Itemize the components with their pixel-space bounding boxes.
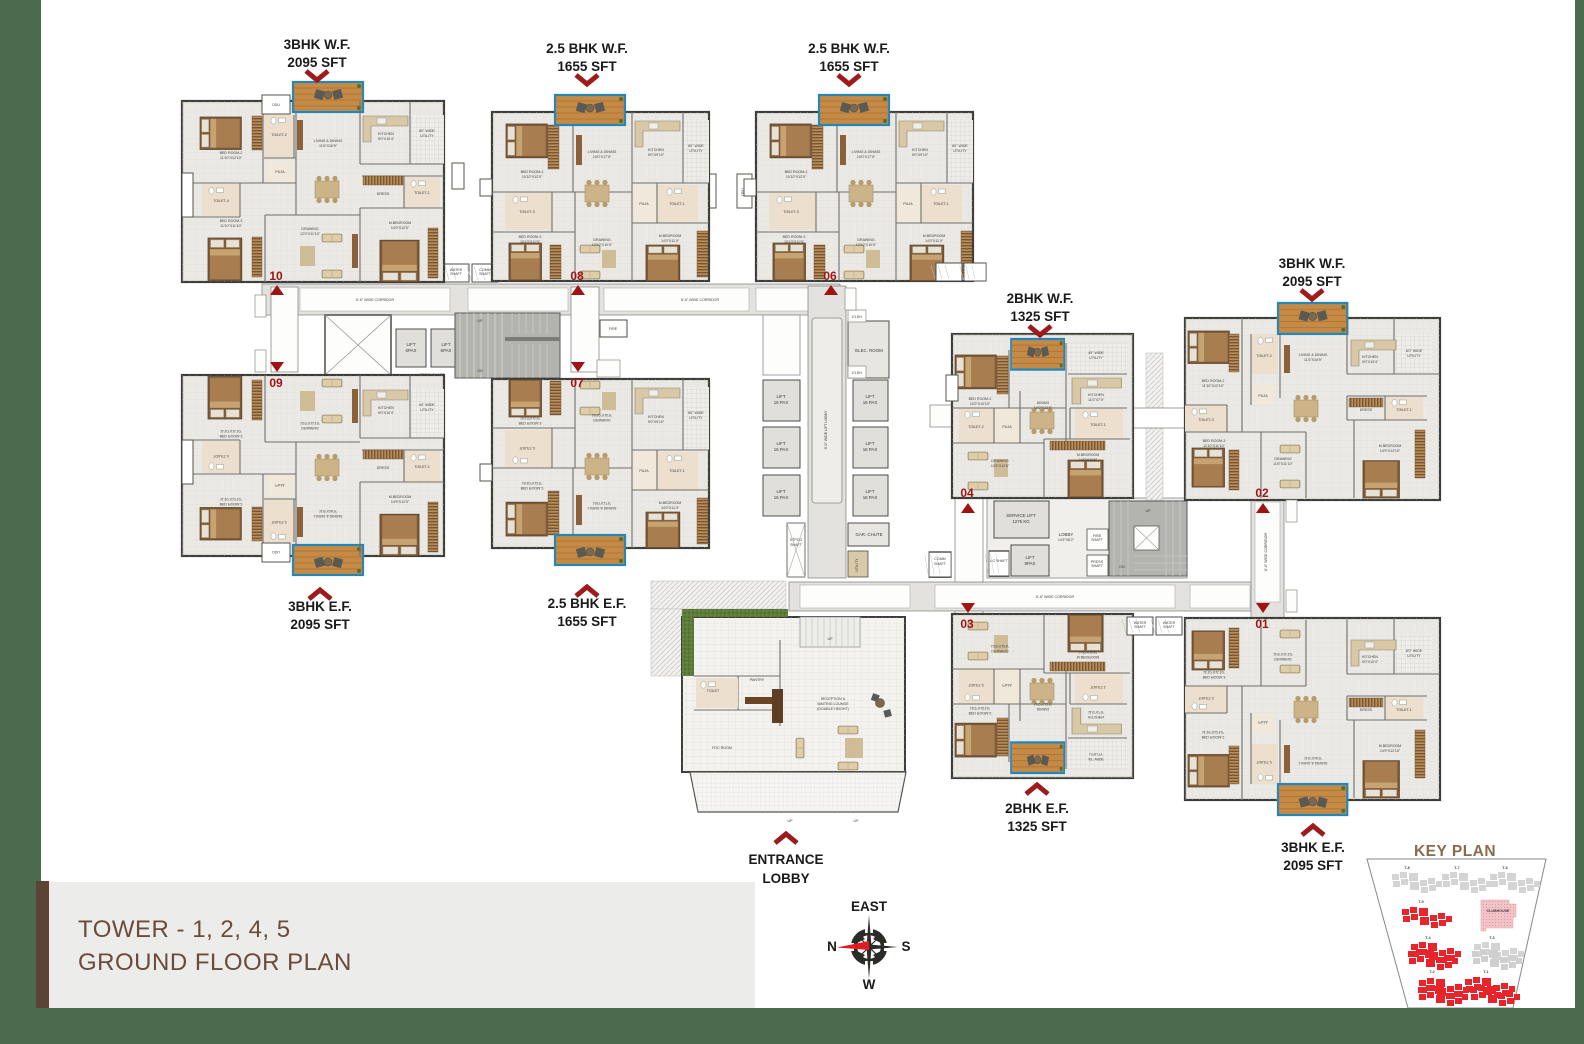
svg-text:T-2: T-2 [1429, 970, 1434, 974]
svg-text:LIFT: LIFT [776, 441, 785, 446]
svg-text:6PAX: 6PAX [441, 348, 452, 353]
svg-text:3BHK W.F.: 3BHK W.F. [284, 37, 351, 52]
svg-text:T-7: T-7 [1454, 866, 1459, 870]
svg-text:T-6: T-6 [1502, 866, 1507, 870]
svg-text:GROUND FLOOR PLAN: GROUND FLOOR PLAN [78, 949, 352, 976]
svg-text:8'-6" WIDE CORRIDOR: 8'-6" WIDE CORRIDOR [1036, 595, 1075, 599]
svg-text:W: W [863, 977, 876, 992]
svg-text:09: 09 [269, 376, 283, 390]
svg-text:16 PAX: 16 PAX [863, 495, 878, 500]
svg-text:9'-0" WIDE LIFT LOBBY: 9'-0" WIDE LIFT LOBBY [824, 410, 828, 449]
svg-text:2095 SFT: 2095 SFT [287, 55, 347, 70]
svg-text:UP: UP [828, 637, 834, 641]
svg-text:DN: DN [477, 369, 483, 373]
svg-text:2.5 BHK E.F.: 2.5 BHK E.F. [548, 596, 627, 611]
svg-text:SHAFT: SHAFT [479, 272, 492, 276]
svg-text:08: 08 [570, 269, 584, 283]
svg-text:UP: UP [478, 319, 484, 323]
svg-text:ELSH: ELSH [852, 315, 862, 319]
svg-text:2095 SFT: 2095 SFT [1283, 858, 1343, 873]
svg-text:(DOUBLE HEIGHT): (DOUBLE HEIGHT) [817, 707, 849, 711]
svg-text:8'-6" WIDE CORRIDOR: 8'-6" WIDE CORRIDOR [1264, 533, 1268, 572]
svg-text:LIFT: LIFT [776, 394, 785, 399]
svg-text:8'-6" WIDE CORRIDOR: 8'-6" WIDE CORRIDOR [356, 298, 395, 302]
svg-text:01: 01 [1255, 617, 1269, 631]
svg-text:LIFT: LIFT [865, 441, 874, 446]
svg-text:LIFT: LIFT [406, 342, 415, 347]
svg-text:N: N [827, 939, 837, 954]
svg-text:3BHK W.F.: 3BHK W.F. [1279, 256, 1346, 271]
svg-text:TOWER - 1, 2, 4, 5: TOWER - 1, 2, 4, 5 [78, 916, 291, 943]
svg-text:SHAFT: SHAFT [934, 562, 947, 566]
svg-text:LIFT: LIFT [1025, 555, 1034, 560]
svg-text:RECEPTION &: RECEPTION & [821, 697, 846, 701]
svg-text:EAST: EAST [851, 899, 888, 914]
svg-text:16 PAX: 16 PAX [774, 400, 789, 405]
svg-text:6PAX: 6PAX [406, 348, 417, 353]
svg-text:T-5: T-5 [1418, 900, 1423, 904]
svg-text:GAR. CHUTE: GAR. CHUTE [855, 532, 882, 537]
svg-text:UP: UP [1146, 509, 1152, 513]
svg-text:S: S [901, 939, 910, 954]
svg-text:8PAX: 8PAX [1025, 561, 1036, 566]
svg-text:16 PAX: 16 PAX [774, 447, 789, 452]
svg-text:ELEC. ROOM: ELEC. ROOM [855, 348, 883, 353]
svg-text:8'-6" WIDE CORRIDOR: 8'-6" WIDE CORRIDOR [681, 298, 720, 302]
svg-text:KEY PLAN: KEY PLAN [1414, 843, 1496, 860]
svg-text:07: 07 [570, 376, 584, 390]
svg-text:2095 SFT: 2095 SFT [1282, 274, 1342, 289]
svg-text:SHAFT: SHAFT [790, 543, 803, 547]
svg-text:06: 06 [823, 269, 837, 283]
svg-text:ELSH: ELSH [852, 371, 862, 375]
svg-text:WAITING LOUNGE: WAITING LOUNGE [817, 702, 849, 706]
svg-text:SHAFT: SHAFT [450, 272, 463, 276]
svg-text:ENTRANCE: ENTRANCE [748, 852, 823, 867]
svg-text:1655 SFT: 1655 SFT [557, 59, 617, 74]
svg-text:04: 04 [960, 486, 974, 500]
svg-text:3BHK E.F.: 3BHK E.F. [1281, 840, 1345, 855]
svg-text:DN: DN [1119, 565, 1125, 569]
svg-text:03: 03 [960, 617, 974, 631]
svg-text:3BHK E.F.: 3BHK E.F. [288, 599, 352, 614]
svg-text:SERVICE LIFT: SERVICE LIFT [1006, 513, 1036, 518]
svg-text:LG SHAFT: LG SHAFT [990, 559, 1008, 563]
svg-text:CLUBHOUSE: CLUBHOUSE [1487, 909, 1510, 913]
svg-text:1325 SFT: 1325 SFT [1010, 309, 1070, 324]
svg-text:PANTRY: PANTRY [750, 678, 765, 682]
svg-text:TOILET: TOILET [707, 689, 720, 693]
svg-text:T-1: T-1 [1483, 970, 1488, 974]
svg-text:16 PAX: 16 PAX [774, 495, 789, 500]
svg-text:LOBBY: LOBBY [762, 871, 809, 886]
svg-text:STPCG: STPCG [790, 538, 803, 542]
svg-text:02: 02 [1255, 486, 1269, 500]
svg-text:1655 SFT: 1655 SFT [557, 614, 617, 629]
svg-text:2.5 BHK W.F.: 2.5 BHK W.F. [808, 41, 890, 56]
svg-text:14'4"X8'2": 14'4"X8'2" [1058, 538, 1075, 542]
svg-text:1325 SFT: 1325 SFT [1007, 819, 1067, 834]
svg-text:UTILITY: UTILITY [855, 558, 859, 572]
svg-text:T-8: T-8 [1404, 866, 1409, 870]
svg-text:16 PAX: 16 PAX [863, 447, 878, 452]
svg-text:16 PAX: 16 PAX [863, 400, 878, 405]
svg-text:2.5 BHK W.F.: 2.5 BHK W.F. [546, 41, 628, 56]
svg-text:LIFT: LIFT [776, 489, 785, 494]
svg-text:COMM: COMM [934, 557, 945, 561]
svg-text:SHAFT: SHAFT [1091, 564, 1104, 568]
svg-text:2BHK W.F.: 2BHK W.F. [1007, 291, 1074, 306]
svg-text:FOC ROOM: FOC ROOM [712, 746, 732, 750]
svg-text:SHAFT: SHAFT [1163, 625, 1176, 629]
svg-text:1275 KG: 1275 KG [1012, 519, 1030, 524]
svg-text:2095 SFT: 2095 SFT [290, 617, 350, 632]
svg-text:LOBBY: LOBBY [1059, 532, 1074, 537]
svg-text:LIFT: LIFT [865, 394, 874, 399]
svg-text:SHAFT: SHAFT [1134, 625, 1147, 629]
svg-text:SHAFT: SHAFT [1091, 538, 1104, 542]
svg-text:UP: UP [788, 819, 794, 823]
svg-text:LIFT: LIFT [865, 489, 874, 494]
svg-text:T-4: T-4 [1425, 936, 1430, 940]
svg-text:10: 10 [269, 269, 283, 283]
svg-text:UP: UP [854, 819, 860, 823]
svg-text:1655 SFT: 1655 SFT [819, 59, 879, 74]
svg-text:FIRE: FIRE [609, 327, 618, 331]
svg-text:LIFT: LIFT [441, 342, 450, 347]
svg-text:2BHK E.F.: 2BHK E.F. [1005, 801, 1069, 816]
svg-text:T-3: T-3 [1489, 936, 1494, 940]
